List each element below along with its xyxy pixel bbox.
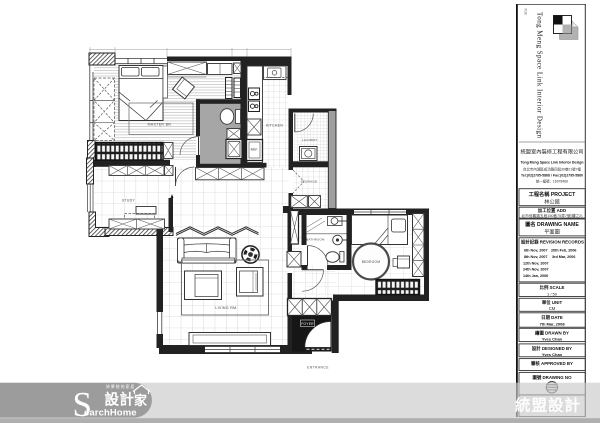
svg-text:LAUNDRY: LAUNDRY (302, 138, 318, 142)
svg-text:BEDROOM: BEDROOM (362, 260, 381, 264)
svg-text:北市信義路五段150巷75弄7號(樓之2): 北市信義路五段150巷75弄7號(樓之2) (521, 213, 582, 218)
svg-text:Yves Chan: Yves Chan (542, 337, 563, 342)
svg-text:7th Mar, 2008: 7th Mar, 2008 (539, 322, 565, 327)
svg-text:earchHome: earchHome (84, 408, 137, 419)
svg-text:妳夢想的家居: 妳夢想的家居 (106, 384, 135, 389)
svg-text:ENTRANCE: ENTRANCE (307, 366, 329, 370)
svg-text:KITCHEN: KITCHEN (266, 124, 283, 128)
svg-text:Tel:(02)2795-5868 / Fax:(02)27: Tel:(02)2795-5868 / Fax:(02)2795-5860 (521, 174, 583, 178)
svg-text:統一編號：16978466: 統一編號：16978466 (536, 179, 568, 184)
svg-text:比例 SCALE: 比例 SCALE (540, 284, 565, 291)
svg-text:統盟設計: 統盟設計 (515, 396, 581, 415)
svg-text:3rd Mar, 2006: 3rd Mar, 2006 (552, 255, 575, 259)
svg-text:設計 DESIGNED BY: 設計 DESIGNED BY (532, 345, 572, 352)
svg-text:設計: 設計 (105, 391, 135, 409)
svg-text:統盟室內裝修工程有限公司: 統盟室內裝修工程有限公司 (521, 148, 584, 156)
svg-text:審核 APPROVED BY: 審核 APPROVED BY (530, 360, 573, 367)
svg-text:STORAGE: STORAGE (301, 180, 318, 184)
svg-text:REF.: REF. (251, 148, 259, 152)
svg-text:繪圖 DRAWN BY: 繪圖 DRAWN BY (535, 330, 569, 337)
svg-text:Tong Meng Space Link Interior: Tong Meng Space Link Interior Design (521, 161, 584, 165)
svg-text:平面圖: 平面圖 (544, 229, 560, 236)
svg-text:Yves Chan: Yves Chan (542, 352, 563, 357)
svg-text:Tong Meng Space Link Interior: Tong Meng Space Link Interior Design (536, 12, 544, 139)
svg-text:CM: CM (549, 306, 556, 311)
svg-text:8th Nov, 2007: 8th Nov, 2007 (524, 255, 548, 259)
svg-text:6th Nov, 2007: 6th Nov, 2007 (524, 249, 548, 253)
svg-text:STUDY: STUDY (122, 199, 135, 203)
svg-text:林公館: 林公館 (544, 198, 560, 206)
svg-text:圖號 DRAWING NO: 圖號 DRAWING NO (532, 374, 572, 381)
svg-text:單位 UNIT: 單位 UNIT (542, 299, 563, 306)
svg-text:20th Feb, 2006: 20th Feb, 2006 (551, 249, 576, 253)
svg-text:12th Nov, 2007: 12th Nov, 2007 (523, 262, 549, 266)
svg-text:家: 家 (134, 393, 148, 408)
svg-text:7cm: 7cm (524, 8, 528, 15)
svg-text:工程名稱 PROJECT: 工程名稱 PROJECT (529, 190, 577, 198)
svg-text:FOYER: FOYER (301, 322, 314, 326)
svg-text:MASTER BR.: MASTER BR. (148, 123, 173, 127)
svg-text:BATHROOM: BATHROOM (306, 238, 325, 242)
svg-text:LIVING RM.: LIVING RM. (215, 306, 237, 310)
svg-text:圖名 DRAWING NAME: 圖名 DRAWING NAME (525, 220, 579, 228)
svg-text:24th Nov, 2007: 24th Nov, 2007 (523, 268, 549, 272)
svg-text:14th Jan, 2006: 14th Jan, 2006 (523, 274, 548, 278)
svg-text:日期 DATE: 日期 DATE (541, 314, 563, 321)
svg-text:1 / 50: 1 / 50 (547, 291, 558, 296)
svg-text:設計記錄 REVISION RECORDS: 設計記錄 REVISION RECORDS (521, 239, 584, 246)
svg-text:台北市內湖區成功路四段30巷21號7樓: 台北市內湖區成功路四段30巷21號7樓 (523, 167, 582, 172)
